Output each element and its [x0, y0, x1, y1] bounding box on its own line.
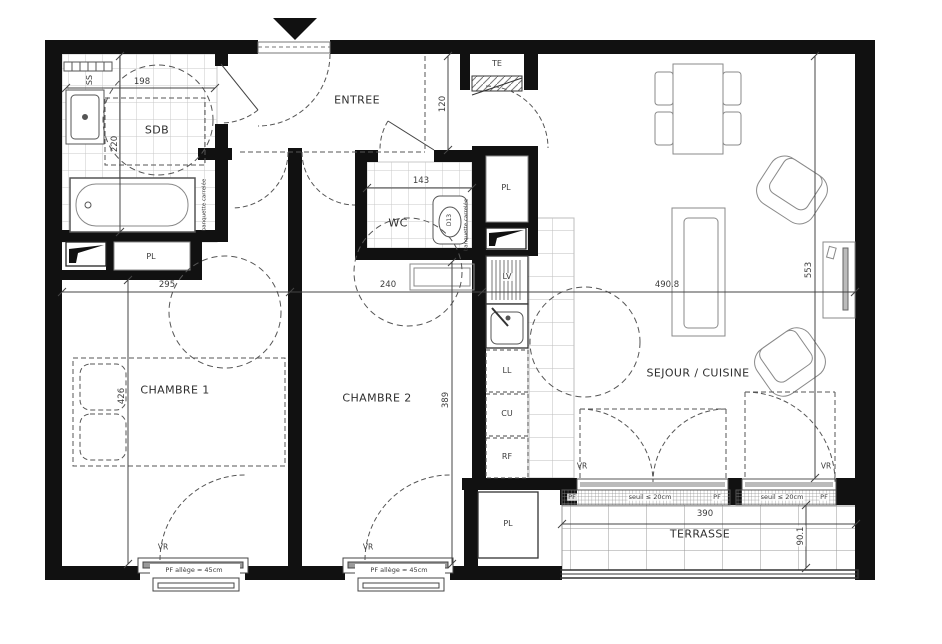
entrance-arrow-icon: [273, 18, 317, 40]
window-label-pf-2: PF: [712, 494, 722, 501]
dining-set: [655, 64, 741, 154]
room-label-chambre1: CHAMBRE 1: [140, 385, 209, 396]
armchair-2: [748, 322, 831, 403]
desk: [410, 264, 474, 290]
room-label-chambre2: CHAMBRE 2: [342, 393, 411, 404]
threshold-label-1: seuil ≤ 20cm: [628, 494, 673, 501]
shutter-label-terr-left: VR: [577, 462, 587, 470]
towel-rail: [64, 62, 112, 71]
room-label-terrasse: TERRASSE: [670, 529, 730, 540]
dim-wc-width: 143: [413, 177, 429, 186]
tv-unit: [823, 242, 855, 318]
bathroom-sink: [66, 90, 104, 144]
sill-label-ch2: PF allège ≈ 45cm: [370, 567, 427, 574]
toilet-label: D13: [447, 214, 453, 226]
cooker-label: CU: [501, 410, 512, 418]
hall-sejour-door-swing: [486, 86, 548, 148]
wc-door-leaf: [388, 121, 434, 150]
dim-chambre1-height: 426: [118, 388, 127, 404]
dim-chambre1-width: 295: [159, 281, 175, 290]
sofa: [672, 208, 725, 336]
window-label-pf-3: PF: [819, 494, 829, 501]
dim-chambre2-width: 240: [380, 281, 396, 290]
shutter-label-ch2: VR: [363, 543, 373, 551]
bed: [73, 358, 285, 466]
closet-label-2: PL: [501, 184, 510, 192]
banquette-label-wc: banquette carrelée: [464, 199, 470, 252]
dim-hall-width: 120: [439, 96, 448, 112]
dishwasher-label: LV: [501, 273, 512, 281]
sill-label-ch1: PF allège ≈ 45cm: [165, 567, 222, 574]
kitchen-sink: [486, 304, 528, 348]
fridge-label: RF: [502, 453, 512, 461]
floorplan: ENTREE SDB WC CHAMBRE 1 CHAMBRE 2 SEJOUR…: [0, 0, 942, 644]
room-label-wc: WC: [388, 218, 407, 229]
room-label-sejour: SEJOUR / CUISINE: [646, 368, 749, 379]
window-label-pf-1: PF: [567, 494, 577, 501]
electrical-panel-label: TE: [492, 60, 502, 68]
dim-sejour-height: 553: [805, 262, 814, 278]
sdb-door-leaf: [221, 64, 258, 110]
entrance-door: [258, 18, 330, 126]
floorplan-drawing: [0, 0, 942, 644]
closet-label-1: PL: [146, 253, 155, 261]
shutter-label-ch1: VR: [158, 543, 168, 551]
towel-rail-label: SS: [86, 75, 94, 85]
banquette-label-sdb: banquette carrelée: [202, 179, 208, 232]
dim-chambre2-height: 389: [442, 392, 451, 408]
washer-label: LL: [503, 367, 512, 375]
electrical-panel: [472, 76, 522, 95]
dim-sdb-width: 198: [134, 78, 150, 87]
room-label-entree: ENTREE: [334, 95, 380, 106]
chambre2-door-swing: [302, 152, 355, 205]
dim-sdb-height: 220: [111, 136, 120, 152]
room-label-sdb: SDB: [145, 125, 169, 136]
shutter-label-terr-right: VR: [821, 462, 831, 470]
dim-sejour-width: 490.8: [655, 281, 679, 290]
chambre1-door-swing: [232, 152, 288, 208]
closet-label-3: PL: [503, 520, 512, 528]
armchair-1: [750, 150, 833, 230]
dim-terrasse-height: 90.1: [797, 526, 806, 547]
bathtub: [70, 178, 195, 232]
dim-terrasse-width: 390: [696, 510, 714, 519]
threshold-label-2: seuil ≤ 20cm: [760, 494, 805, 501]
